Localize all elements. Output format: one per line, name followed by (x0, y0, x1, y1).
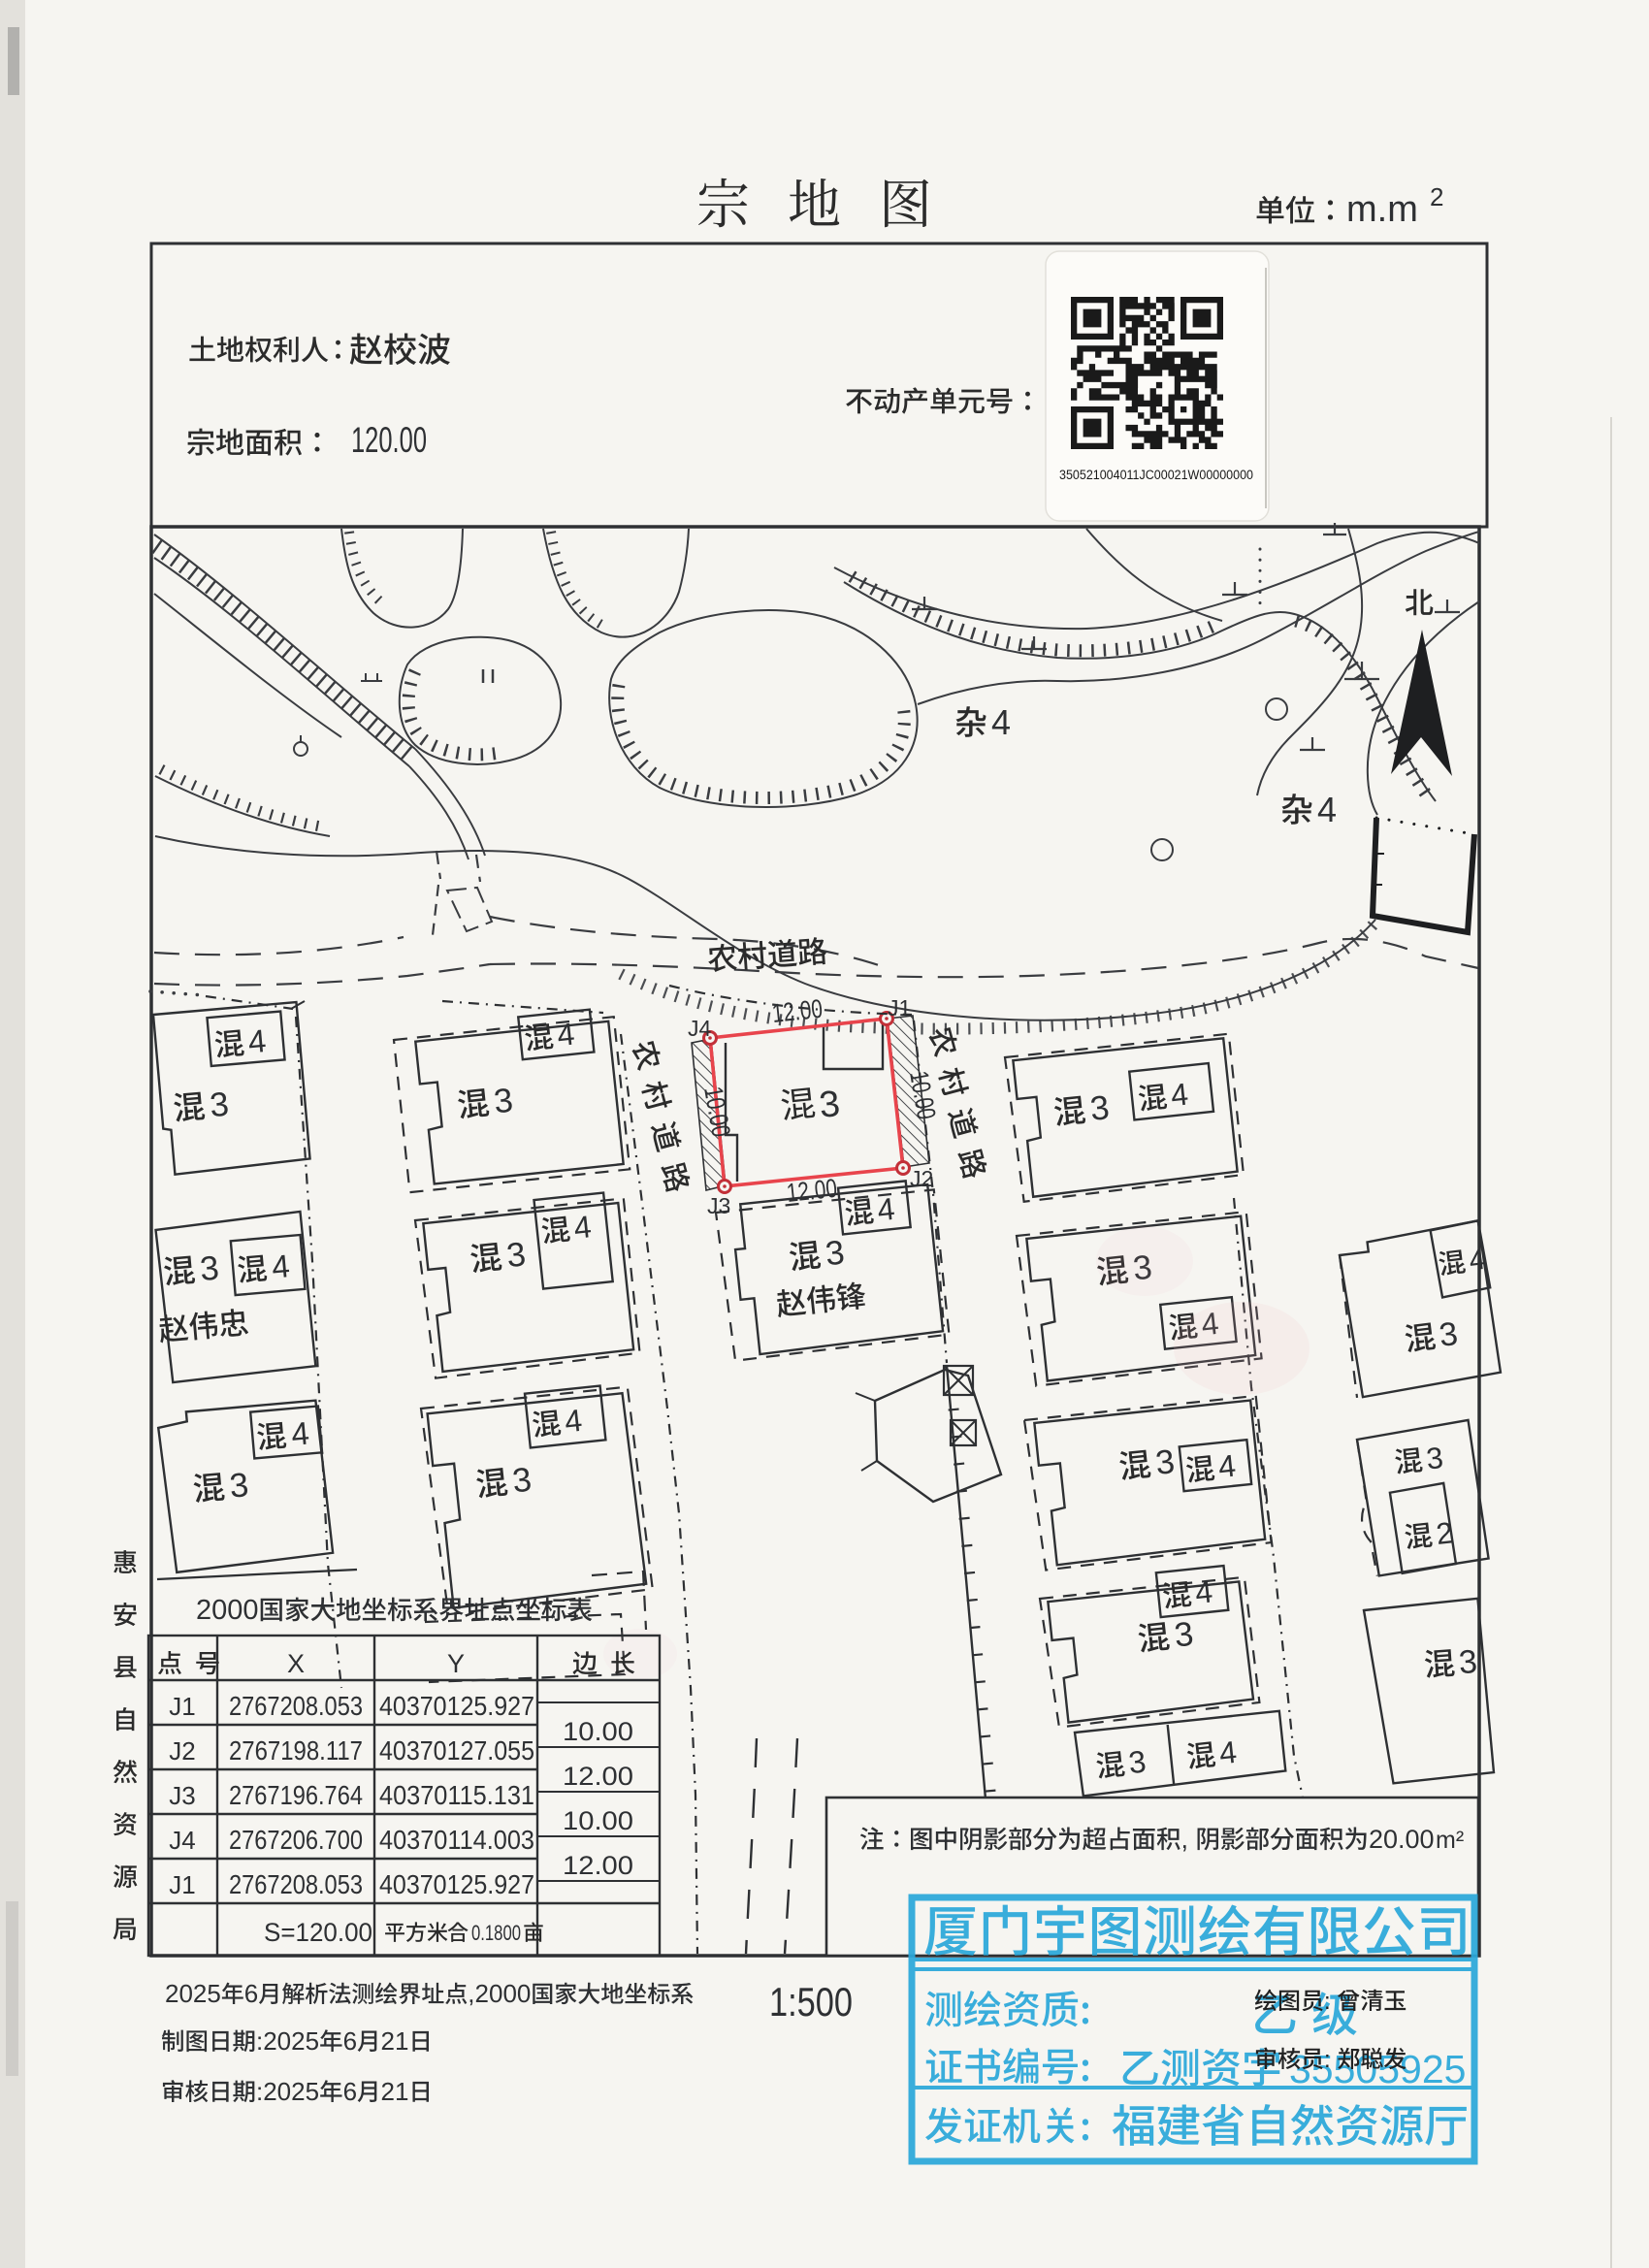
svg-text:2767208.053: 2767208.053 (229, 1869, 363, 1899)
svg-text:3: 3 (228, 1466, 250, 1506)
svg-text:6: 6 (343, 2077, 357, 2106)
svg-text:1:500: 1:500 (769, 1979, 853, 2025)
svg-text:m²: m² (1436, 1827, 1464, 1854)
svg-text:2025: 2025 (165, 1979, 221, 2008)
svg-text:40370114.003: 40370114.003 (379, 1825, 534, 1855)
svg-text:3: 3 (199, 1249, 221, 1289)
svg-text:J1: J1 (169, 1870, 195, 1899)
svg-text:J1: J1 (169, 1692, 195, 1721)
svg-text:40370125.927: 40370125.927 (379, 1869, 534, 1899)
svg-text:3: 3 (510, 1461, 533, 1501)
svg-text:J3: J3 (169, 1781, 195, 1810)
svg-text:2: 2 (1435, 1515, 1455, 1551)
svg-text:4: 4 (1216, 1448, 1237, 1485)
svg-text:4: 4 (1169, 1077, 1189, 1114)
svg-text:4: 4 (556, 1017, 576, 1053)
svg-text:3: 3 (1127, 1744, 1148, 1781)
svg-text:,: , (1181, 1825, 1189, 1854)
svg-text:m.m: m.m (1346, 189, 1418, 230)
svg-text:3: 3 (1088, 1088, 1111, 1128)
svg-text:J4: J4 (169, 1826, 195, 1855)
svg-text:21: 21 (381, 2077, 409, 2106)
svg-text::: : (1324, 2047, 1331, 2073)
svg-text:2767196.764: 2767196.764 (229, 1780, 363, 1810)
svg-text:4: 4 (1317, 790, 1337, 829)
svg-text:2000: 2000 (196, 1595, 259, 1626)
svg-text:Y: Y (447, 1649, 465, 1678)
svg-text:12.00: 12.00 (770, 994, 824, 1028)
svg-text:12.00: 12.00 (563, 1762, 633, 1791)
svg-text::: : (1324, 1989, 1331, 2015)
svg-text:40370115.131: 40370115.131 (379, 1780, 534, 1810)
svg-text:3: 3 (818, 1084, 842, 1126)
svg-text:21: 21 (381, 2026, 409, 2056)
svg-text:J2: J2 (169, 1736, 195, 1766)
svg-text::2025: :2025 (256, 2026, 319, 2056)
svg-text:4: 4 (563, 1403, 583, 1440)
svg-text:40370127.055: 40370127.055 (379, 1735, 534, 1766)
svg-text:3: 3 (1153, 1442, 1176, 1482)
svg-text:2: 2 (1430, 182, 1443, 211)
svg-text:4: 4 (991, 702, 1011, 742)
svg-text:40370125.927: 40370125.927 (379, 1691, 534, 1721)
svg-text:10.00: 10.00 (563, 1717, 633, 1746)
svg-text:3: 3 (1458, 1643, 1479, 1681)
svg-text:2767198.117: 2767198.117 (229, 1735, 363, 1766)
svg-text:,2000: ,2000 (468, 1979, 531, 2008)
svg-text:4: 4 (572, 1209, 593, 1246)
svg-text:6: 6 (244, 1979, 258, 2008)
svg-text:3: 3 (1173, 1615, 1195, 1655)
svg-text:2767208.053: 2767208.053 (229, 1691, 363, 1721)
svg-text:3: 3 (492, 1082, 514, 1121)
svg-text:3: 3 (504, 1235, 527, 1275)
svg-text:3: 3 (209, 1085, 231, 1125)
svg-text:4: 4 (271, 1247, 292, 1284)
svg-text:12.00: 12.00 (563, 1851, 633, 1880)
svg-text:0.1800: 0.1800 (471, 1921, 521, 1945)
svg-text:J4: J4 (688, 1016, 712, 1041)
svg-text:S=120.00: S=120.00 (264, 1918, 372, 1947)
svg-text:350521004011JC00021W00000000: 350521004011JC00021W00000000 (1059, 468, 1253, 482)
svg-text:4: 4 (1217, 1734, 1238, 1771)
svg-text:120.00: 120.00 (351, 420, 427, 460)
svg-text:4: 4 (876, 1191, 896, 1228)
svg-text:2767206.700: 2767206.700 (229, 1825, 363, 1855)
svg-text:10.00: 10.00 (563, 1806, 633, 1835)
svg-text:4: 4 (1193, 1573, 1213, 1610)
svg-text:4: 4 (290, 1414, 311, 1451)
svg-text:X: X (287, 1649, 305, 1678)
svg-text:20.00: 20.00 (1369, 1825, 1435, 1854)
svg-text:3: 3 (1425, 1441, 1445, 1476)
svg-text:J3: J3 (707, 1193, 730, 1218)
svg-text::2025: :2025 (256, 2077, 319, 2106)
svg-text:6: 6 (343, 2026, 357, 2056)
svg-text:3: 3 (824, 1233, 846, 1273)
svg-text:J1: J1 (888, 995, 911, 1021)
svg-text:4: 4 (246, 1022, 268, 1059)
